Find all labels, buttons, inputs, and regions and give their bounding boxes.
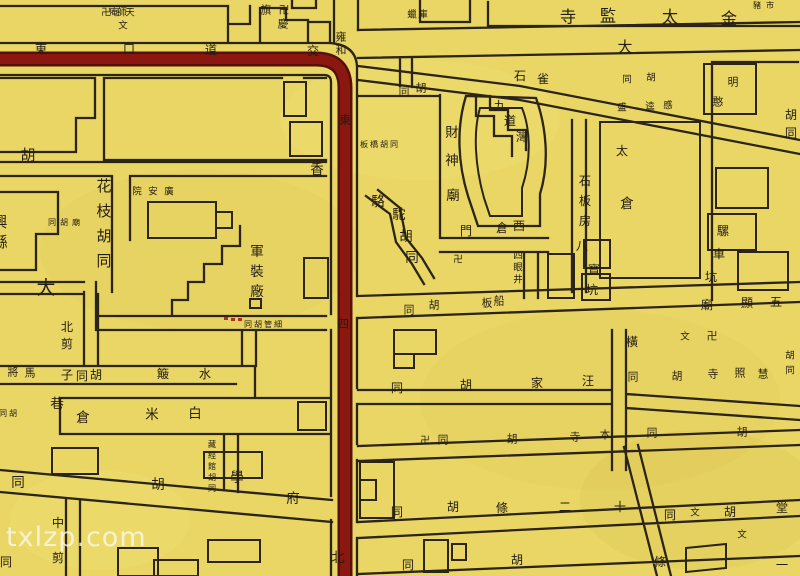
map-label-char: 寺 xyxy=(708,368,719,381)
map-label-char: 胡 xyxy=(254,319,262,329)
map-label-char: 胡 xyxy=(21,146,36,164)
map-label-char: 胡 xyxy=(737,425,748,439)
map-label-char: 同 xyxy=(391,505,403,519)
map-label-char: 府 xyxy=(286,491,300,507)
map-label-char: 學 xyxy=(230,470,244,486)
map-label-char: 胡 xyxy=(646,72,656,84)
map-label-char: 坑 xyxy=(705,269,717,284)
map-label-char: 東 xyxy=(35,42,47,56)
map-label-char: 簸 xyxy=(157,366,169,381)
map-label-char: 胡 xyxy=(460,378,472,392)
map-label-char: 胡 xyxy=(90,368,102,382)
map-label-char: 四 xyxy=(337,317,349,331)
map-label-char: 四 xyxy=(513,251,523,262)
map-label-char: 胡 xyxy=(507,432,518,446)
map-label-char: 石 xyxy=(579,174,591,188)
map-label-char: 藏 xyxy=(208,439,216,449)
map-label-char: 同 xyxy=(647,427,658,440)
map-label-char: 同 xyxy=(785,126,797,140)
map-label-char: 東 xyxy=(339,113,351,127)
map-label-char: 財 xyxy=(445,125,459,141)
map-label-char: 灣 xyxy=(516,130,528,144)
map-label-char: 同 xyxy=(404,304,415,317)
map-label-char: 北 xyxy=(331,550,345,566)
map-label-char: 同 xyxy=(402,558,414,572)
map-label-char: 大 xyxy=(37,277,56,299)
map-label-char: 倉 xyxy=(496,220,508,235)
map-label-char: 胡 xyxy=(785,108,797,122)
map-label-char: 胡 xyxy=(785,350,795,362)
map-label-char: 同 xyxy=(664,508,676,522)
map-label-char: 口 xyxy=(123,42,135,56)
map-label-char: 同 xyxy=(438,434,449,447)
map-label-char: 卍 xyxy=(707,330,718,343)
map-label-char: 花 xyxy=(97,177,112,195)
map-label-char: 香 xyxy=(310,162,324,178)
map-label-char: 胡 xyxy=(724,505,736,519)
map-label-char: 坑 xyxy=(586,282,598,297)
map-label-char: 馬 xyxy=(25,367,36,380)
map-label-char: 雍 xyxy=(336,30,347,44)
map-label-char: 胡 xyxy=(429,298,440,312)
map-label-char: 巷 xyxy=(50,396,64,412)
map-label-char: 船 xyxy=(494,294,505,308)
map-label-char: 二 xyxy=(559,500,571,514)
map-label-char: 廟 xyxy=(446,187,460,204)
map-label-char: 太 xyxy=(662,8,678,27)
map-label-char: 八 xyxy=(576,239,588,253)
map-label-char: 家 xyxy=(531,375,543,390)
map-label-char: 興 xyxy=(0,213,8,231)
map-label-char: 院 xyxy=(132,186,142,198)
map-label-char: 監 xyxy=(600,7,616,26)
map-label-char: 寺 xyxy=(570,431,581,444)
map-label-char: 同 xyxy=(628,371,639,384)
map-label-char: 天 xyxy=(125,8,135,19)
map-label-char: 同 xyxy=(0,408,7,418)
map-label-char: 明 xyxy=(728,76,739,89)
map-label-char: 倉 xyxy=(620,196,634,212)
map-label-char: 板 xyxy=(579,194,591,208)
map-label-char: 騾 xyxy=(717,224,729,238)
map-label-char: 管 xyxy=(264,319,272,329)
map-label-char: 和 xyxy=(336,44,347,57)
map-label-char: 安 xyxy=(148,186,158,198)
map-label-char: 同 xyxy=(76,369,88,383)
map-label-char: 汪 xyxy=(582,374,594,388)
map-label-char: 車 xyxy=(713,247,725,261)
map-label-char: 交 xyxy=(307,43,319,58)
map-label-char: 卍 xyxy=(279,4,290,17)
map-label-char: 廣 xyxy=(164,186,174,198)
map-label-char: 本 xyxy=(600,428,611,442)
map-label-char: 條 xyxy=(654,555,666,569)
map-label-char: 庫 xyxy=(418,9,428,21)
map-label-char: 同 xyxy=(0,555,12,569)
map-label-char: 文 xyxy=(737,529,747,541)
map-label-char: 同 xyxy=(11,475,25,491)
map-label-char: 神 xyxy=(445,153,459,169)
map-label-char: 寺 xyxy=(560,8,576,27)
map-label-char: 門 xyxy=(460,224,472,238)
map-label-char: 文 xyxy=(690,507,700,519)
map-label-char: 廟 xyxy=(72,217,80,227)
map-label-char: 廠 xyxy=(250,283,264,300)
map-label-char: 卍 xyxy=(453,255,463,266)
map-label-char: 倉 xyxy=(76,410,90,426)
map-label-char: 同 xyxy=(97,252,112,270)
map-label-char: 板 xyxy=(360,139,368,149)
map-label-char: 同 xyxy=(390,139,398,149)
map-label-char: 眼 xyxy=(513,263,523,274)
map-label-char: 石 xyxy=(514,69,526,83)
map-label-char: 枝 xyxy=(97,202,112,220)
map-label-char: 盛 xyxy=(617,102,627,114)
map-label-char: 蠟 xyxy=(407,9,417,21)
map-label-char: 軍 xyxy=(250,244,264,260)
map-label-char: 胡 xyxy=(672,369,683,383)
map-label-char: 橫 xyxy=(626,335,638,349)
map-label-char: 駱 xyxy=(371,194,385,210)
map-label-char: 文 xyxy=(680,331,690,343)
map-label-char: 金 xyxy=(721,10,737,29)
map-label-char: 卍 xyxy=(420,436,430,447)
map-label-char: 胡 xyxy=(399,229,413,245)
map-label-char: 同 xyxy=(48,217,56,227)
map-label-char: 米 xyxy=(145,407,159,423)
map-label-char: 胡 xyxy=(208,472,216,482)
map-label-char: 胡 xyxy=(9,408,17,418)
map-label-char: 胡 xyxy=(380,139,388,149)
map-label-char: 十 xyxy=(614,500,626,514)
watermark: txlzp.com xyxy=(6,522,147,553)
map-label-char: 剪 xyxy=(61,336,73,351)
map-label-char: 豬 xyxy=(753,0,761,10)
map-label-char: 胡 xyxy=(97,227,112,245)
map-label-char: 道 xyxy=(205,43,217,57)
map-label-char: 同 xyxy=(391,381,403,395)
map-label-char: 胡 xyxy=(60,217,68,227)
map-label-char: 慶 xyxy=(278,17,289,31)
map-label-char: 胡 xyxy=(151,477,165,493)
map-label-char: 逵 xyxy=(645,101,655,113)
map-label-char: 堂 xyxy=(776,501,788,515)
map-label-char: 同 xyxy=(785,366,795,377)
map-label-char: 西 xyxy=(513,219,525,233)
map-viewport: 卍庵師天文旗卍慶蠟庫豬市寺監太金東口道交雍和大東四北胡同胡石雀同胡明盛逵慼憨九道… xyxy=(0,0,800,576)
map-label-char: 寶 xyxy=(588,262,600,277)
map-label-char: 經 xyxy=(208,450,216,460)
map-label-char: 將 xyxy=(8,365,19,379)
map-label-char: 胡 xyxy=(511,553,523,567)
map-label-char: 一 xyxy=(776,558,788,572)
map-image: 卍庵師天文旗卍慶蠟庫豬市寺監太金東口道交雍和大東四北胡同胡石雀同胡明盛逵慼憨九道… xyxy=(0,0,800,576)
map-label-char: 裝 xyxy=(250,264,264,280)
map-label-char: 同 xyxy=(622,75,632,86)
map-label-char: 縣 xyxy=(0,233,8,251)
map-label-char: 子 xyxy=(61,368,73,382)
map-label-char: 同 xyxy=(405,250,419,266)
map-label-char: 板 xyxy=(482,296,493,310)
map-label-char: 同 xyxy=(399,85,410,98)
map-label-char: 顯 xyxy=(741,296,753,310)
map-label-char: 井 xyxy=(513,274,523,286)
map-label-char: 同 xyxy=(244,319,252,329)
map-label-char: 館 xyxy=(208,461,216,471)
map-label-char: 胡 xyxy=(416,81,427,95)
map-label-char: 照 xyxy=(735,367,746,380)
map-label-char: 市 xyxy=(766,0,774,10)
map-label-char: 旗 xyxy=(261,3,272,17)
map-label-char: 慧 xyxy=(758,367,769,381)
map-label-char: 慼 xyxy=(663,101,673,112)
map-label-char: 憨 xyxy=(713,95,724,109)
map-label-char: 九 xyxy=(494,99,506,113)
map-label-char: 胡 xyxy=(447,500,459,514)
map-label-char: 同 xyxy=(208,483,216,493)
map-label-char: 水 xyxy=(199,367,211,381)
map-label-char: 大 xyxy=(618,38,633,56)
map-label-char: 條 xyxy=(496,501,508,515)
map-label-char: 太 xyxy=(616,143,628,158)
map-label-char: 北 xyxy=(61,320,73,334)
map-label-char: 文 xyxy=(118,20,128,32)
map-label-char: 道 xyxy=(504,114,516,128)
map-label-char: 五 xyxy=(770,295,782,309)
map-label-char: 駝 xyxy=(392,207,406,223)
map-label-char: 橋 xyxy=(370,139,378,149)
map-label-char: 細 xyxy=(274,319,282,329)
map-label-char: 房 xyxy=(579,213,591,228)
map-label-char: 白 xyxy=(188,406,202,422)
map-label-char: 雀 xyxy=(537,72,549,86)
map-label-char: 廟 xyxy=(701,297,713,312)
